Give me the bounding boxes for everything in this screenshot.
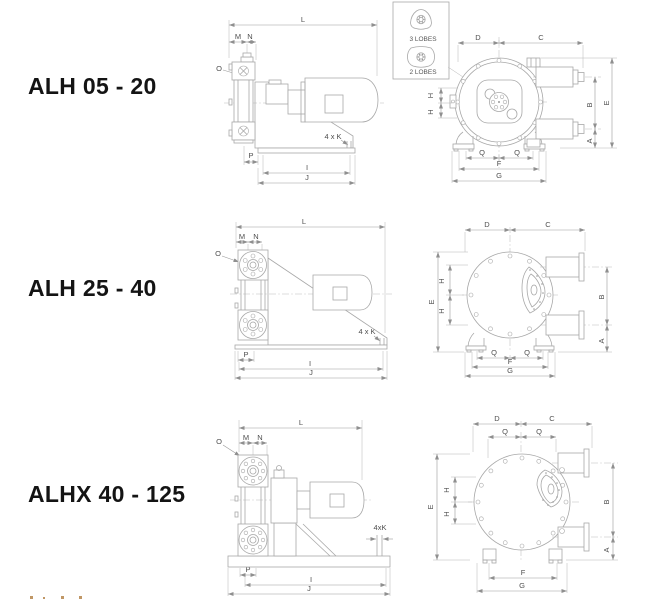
- dim-label-B: B: [602, 499, 611, 504]
- side1-pump-outline: [224, 53, 384, 153]
- dim-label-H1: H: [442, 487, 451, 492]
- model-title-alhx-40-125: ALHX 40 - 125: [28, 481, 185, 508]
- dim-label-M: M: [235, 32, 241, 41]
- dim-label-Q2: Q: [536, 427, 542, 436]
- model-title-alh-05-20: ALH 05 - 20: [28, 73, 157, 100]
- dim-label-F: F: [521, 568, 526, 577]
- dim-label-P: P: [248, 151, 253, 160]
- dim-label-G: G: [519, 581, 525, 590]
- dim-label-Q1: Q: [491, 348, 497, 357]
- dim-label-D: D: [494, 414, 500, 423]
- dim-label-F: F: [508, 357, 513, 366]
- dim-label-N: N: [257, 433, 262, 442]
- dim-label-Q2: Q: [524, 348, 530, 357]
- dim-label-B: B: [585, 102, 594, 107]
- dim-label-D: D: [475, 33, 481, 42]
- dim-label-I: I: [306, 163, 308, 172]
- dim-label-A: A: [585, 138, 594, 143]
- dim-label-K: 4xK: [374, 523, 387, 532]
- dim-label-N: N: [253, 232, 258, 241]
- dim-label-L: L: [302, 218, 306, 226]
- dim-label-O: O: [216, 64, 222, 73]
- dim-label-K: 4 x K: [324, 132, 341, 141]
- dim-label-Q2: Q: [514, 148, 520, 157]
- dim-label-I: I: [310, 575, 312, 584]
- dim-label-B: B: [597, 294, 606, 299]
- alh-05-20-front-view-drawing: D C H H B A E Q Q F: [425, 15, 672, 207]
- dim-label-J: J: [307, 584, 311, 593]
- front2-casing: [462, 235, 558, 352]
- dim-label-L: L: [301, 15, 305, 24]
- dim-label-M: M: [243, 433, 249, 442]
- dim-label-O: O: [216, 437, 222, 446]
- front1-casing: [450, 37, 547, 168]
- dim-label-C: C: [549, 414, 555, 423]
- dim-label-C: C: [545, 222, 551, 229]
- model-title-alh-25-40: ALH 25 - 40: [28, 275, 157, 302]
- dim-label-D: D: [484, 222, 490, 229]
- alh-25-40-side-view-drawing: L M N O 4 x K P I J: [208, 218, 400, 400]
- dim-label-C: C: [538, 33, 544, 42]
- page: ALH 05 - 20 ALH 25 - 40 ALHX 40 - 125 L …: [0, 0, 672, 599]
- dim-label-G: G: [496, 171, 502, 180]
- dim-label-I: I: [309, 359, 311, 368]
- dim-label-A: A: [602, 547, 611, 552]
- dim-label-J: J: [309, 368, 313, 377]
- dim-label-M: M: [239, 232, 245, 241]
- alhx-40-125-front-view-drawing: D C Q Q H H B A E F: [425, 410, 672, 599]
- dim-label-G: G: [507, 366, 513, 375]
- dim-label-Q1: Q: [502, 427, 508, 436]
- dim-label-O: O: [215, 249, 221, 258]
- dim-label-E: E: [426, 504, 435, 509]
- dim-label-F: F: [497, 159, 502, 168]
- alh-05-20-side-view-drawing: L M N O 4 x K P I J: [208, 8, 394, 204]
- dim-label-H1: H: [426, 93, 435, 98]
- dim-label-N: N: [247, 32, 252, 41]
- dim-label-H2: H: [437, 308, 446, 313]
- dim-label-Q1: Q: [479, 148, 485, 157]
- dim-label-H2: H: [426, 109, 435, 114]
- dim-label-A: A: [597, 338, 606, 343]
- dim-label-P: P: [243, 350, 248, 359]
- dim-label-H2: H: [442, 511, 451, 516]
- dim-label-L: L: [299, 418, 303, 427]
- dim-label-E: E: [427, 299, 436, 304]
- dim-label-E: E: [602, 100, 611, 105]
- dim-label-J: J: [305, 173, 309, 182]
- alhx-40-125-side-view-drawing: L M N O 4xK P I J: [210, 412, 402, 599]
- dim-label-H1: H: [437, 278, 446, 283]
- alh-25-40-front-view-drawing: D C H H B A E Q Q: [425, 222, 672, 400]
- side3-pump-outline: [228, 455, 390, 567]
